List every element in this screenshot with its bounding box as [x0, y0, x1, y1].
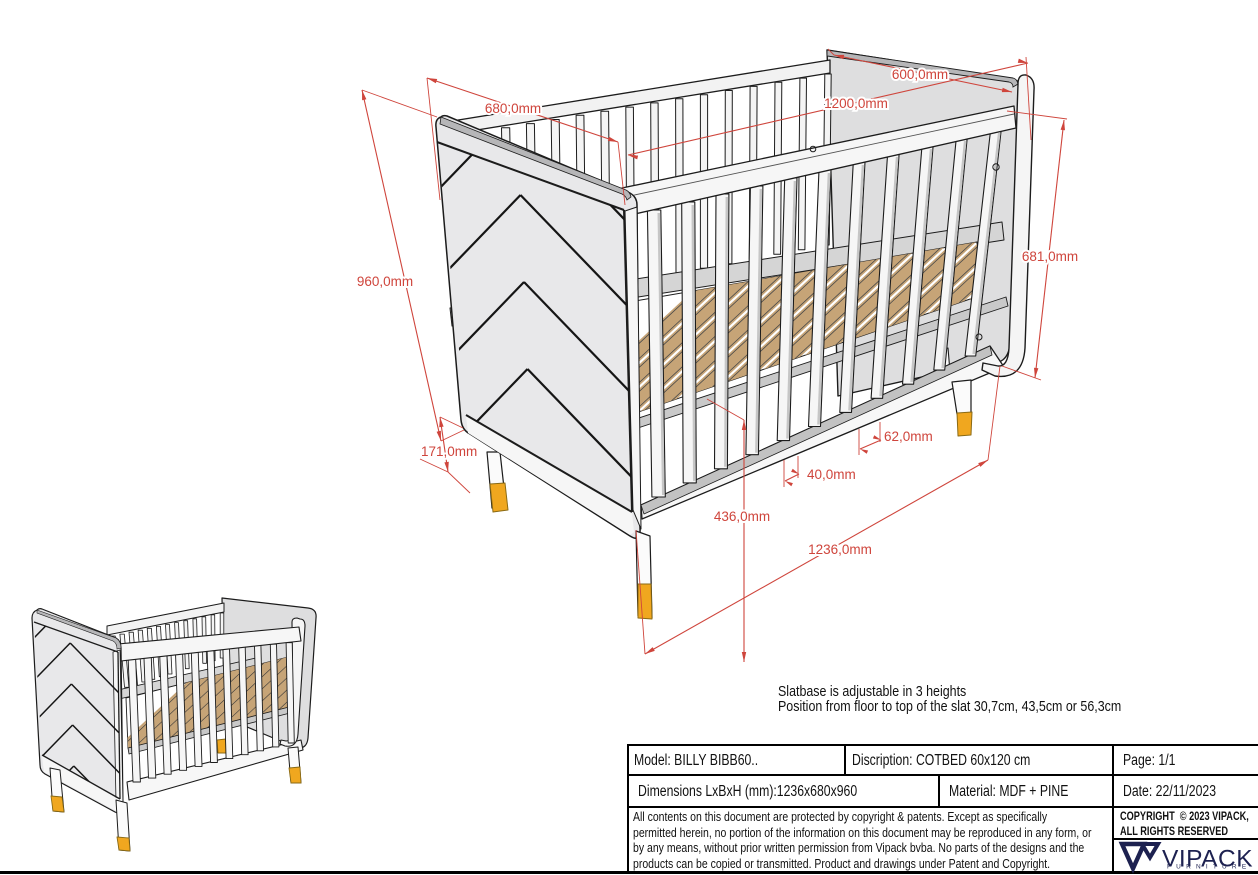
svg-text:436,0mm: 436,0mm [714, 509, 770, 524]
svg-text:40,0mm: 40,0mm [807, 467, 856, 482]
svg-text:960,0mm: 960,0mm [357, 274, 413, 289]
svg-text:680,0mm: 680,0mm [485, 101, 541, 116]
svg-text:600,0mm: 600,0mm [892, 67, 948, 82]
svg-text:1236,0mm: 1236,0mm [808, 542, 872, 557]
svg-text:171,0mm: 171,0mm [421, 444, 477, 459]
svg-text:FURNITURE: FURNITURE [1167, 864, 1251, 871]
svg-text:1200,0mm: 1200,0mm [824, 96, 888, 111]
svg-text:681,0mm: 681,0mm [1022, 249, 1078, 264]
svg-text:62,0mm: 62,0mm [884, 429, 933, 444]
